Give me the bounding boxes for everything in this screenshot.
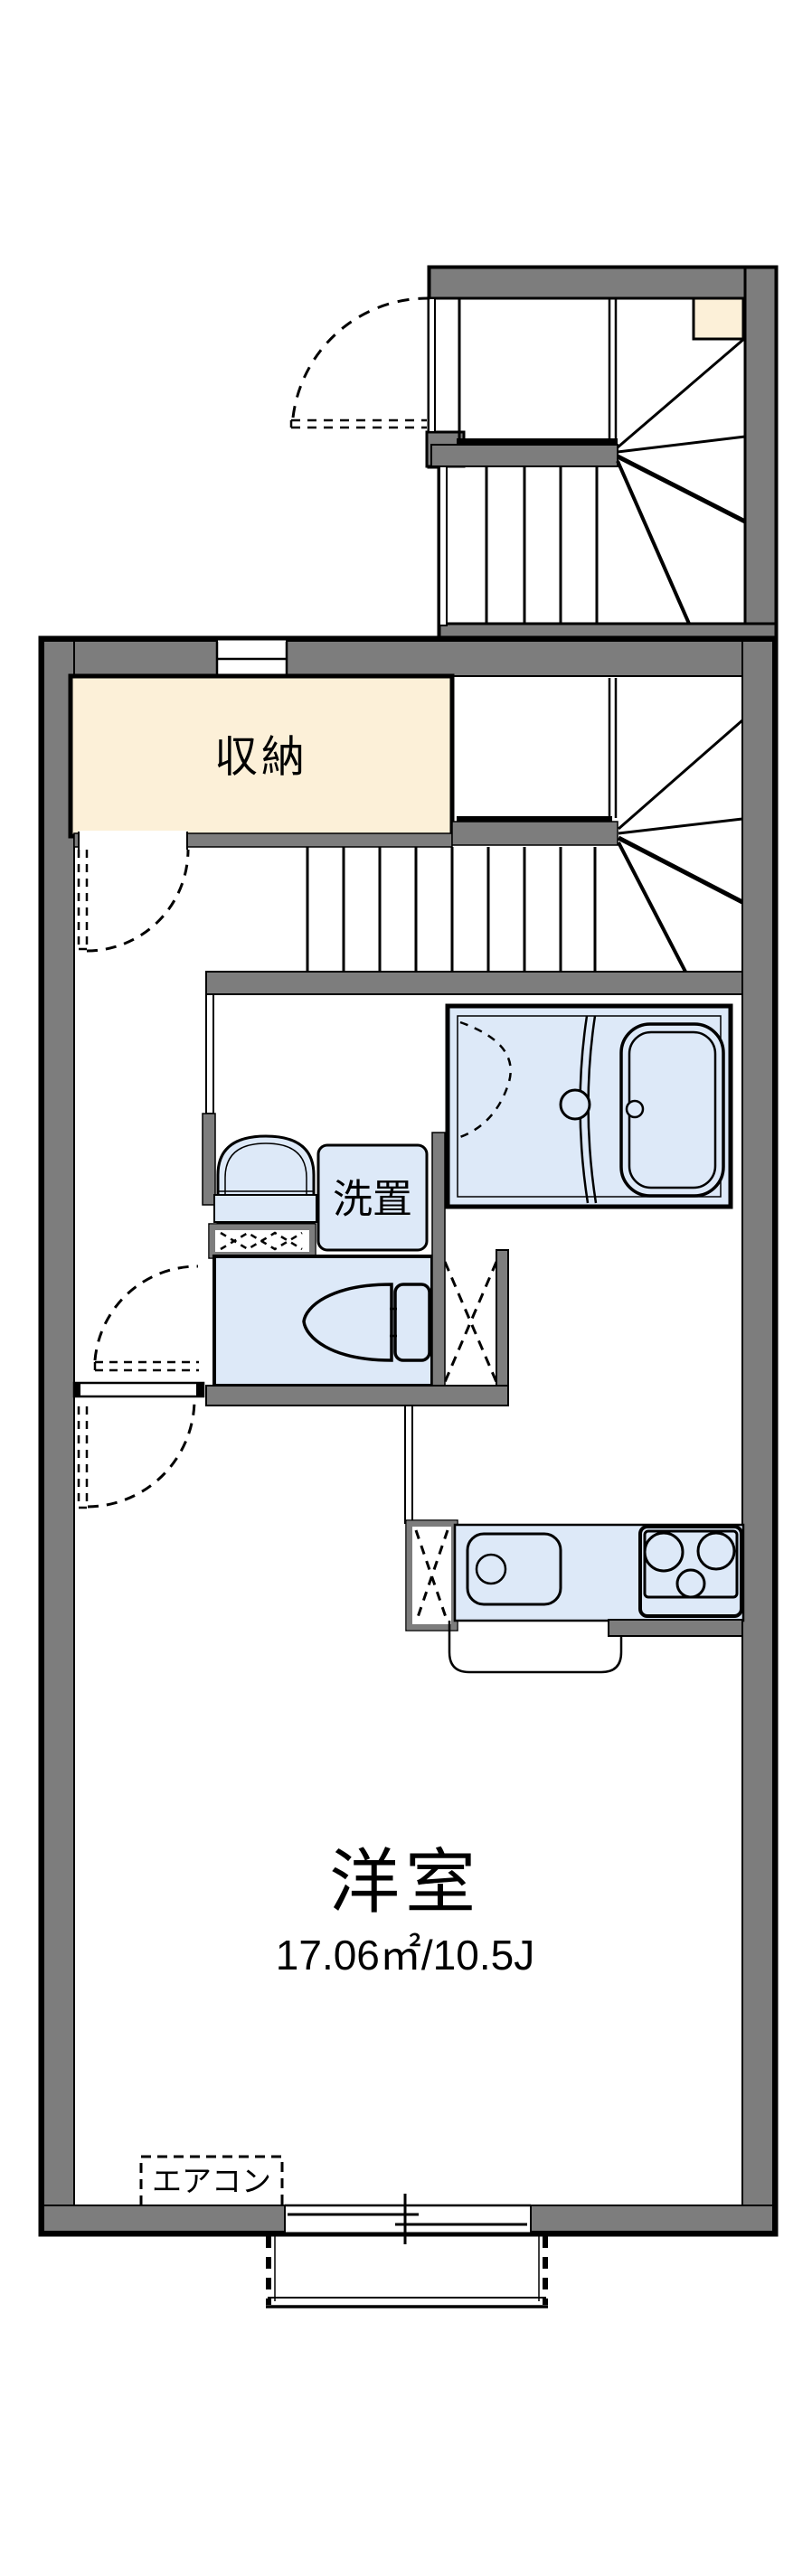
- main-unit: 収納: [41, 638, 776, 2244]
- left-wall: [43, 641, 74, 2230]
- stair-bottom-wall: [206, 972, 742, 994]
- top-wall-right-segment: [287, 641, 773, 676]
- fridge-space: [406, 1520, 458, 1631]
- hall-room-partition: [74, 1383, 203, 1396]
- upper-corner-cabinet: [694, 298, 743, 339]
- room-name-label: 洋室: [329, 1842, 481, 1922]
- burner-left: [645, 1533, 683, 1571]
- kitchen-bottom-wall: [609, 1620, 742, 1636]
- entry-door-swing: [291, 298, 430, 428]
- kitchen-thin-wall: [405, 1406, 412, 1523]
- upper-left-wall-thin-top: [429, 298, 435, 432]
- floor-plan-canvas: 収納: [0, 0, 812, 2576]
- toilet-room: [214, 1256, 432, 1386]
- burner-right: [698, 1533, 734, 1569]
- washroom-left-wall: [203, 1114, 215, 1205]
- bathtub-drain: [627, 1101, 643, 1117]
- storage-label: 収納: [214, 734, 308, 782]
- upper-right-wall: [745, 268, 776, 653]
- aircon-label: エアコン: [152, 2165, 271, 2198]
- upper-landing-edge-line: [457, 438, 618, 446]
- bottom-wall-right-segment: [531, 2205, 773, 2232]
- washroom-thin-wall: [206, 994, 213, 1114]
- bathroom: [448, 1006, 731, 1207]
- entrance-porch: [266, 2236, 548, 2307]
- washbasin: [214, 1136, 316, 1222]
- toilet-tank: [395, 1284, 430, 1360]
- stove: [640, 1527, 741, 1616]
- stair-mid-wall: [452, 822, 618, 845]
- bottom-wall-left-segment: [43, 2205, 285, 2232]
- upper-top-wall: [430, 268, 776, 298]
- laundry-label: 洗置: [333, 1178, 412, 1222]
- kitchen-sink: [467, 1534, 561, 1604]
- upper-left-wall-thin-bottom: [439, 466, 447, 625]
- washer-pan: [209, 1224, 316, 1258]
- storage-door-opening: [79, 831, 187, 850]
- room-size-label: 17.06㎡/10.5J: [276, 1932, 534, 1979]
- bath-door-handle: [561, 1090, 590, 1119]
- stub-wall: [496, 1250, 508, 1396]
- upper-stair-block: [291, 268, 776, 653]
- right-wall: [742, 641, 773, 2230]
- floor-plan-drawing: 収納: [0, 0, 812, 2576]
- washroom-right-wall: [432, 1133, 445, 1406]
- washroom-bottom-wall: [206, 1386, 508, 1406]
- burner-center: [677, 1570, 704, 1597]
- upper-mid-wall-band: [431, 445, 618, 466]
